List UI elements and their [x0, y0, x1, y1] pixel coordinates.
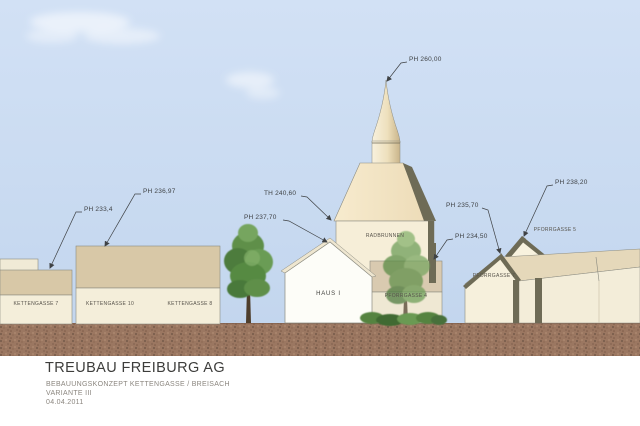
label-kettengasse-7: KETTENGASSE 7 [0, 302, 72, 307]
annotation-ph-pforrgasse7: PH 235,70 [446, 203, 479, 210]
title-date: 04.04.2011 [46, 399, 84, 406]
annotation-ph-kettengasse7: PH 233,4 [84, 207, 113, 214]
title-variant: VARIANTE III [46, 390, 92, 397]
elevation-drawing: PH 233,4 PH 236,97 TH 240,60 PH 237,70 P… [0, 0, 640, 426]
building-kettengasse-7 [0, 270, 72, 324]
title-project: BEBAUUNGSKONZEPT KETTENGASSE / BREISACH [46, 381, 230, 388]
label-pforrgasse-5: PFORRGASSE 5 [529, 228, 581, 233]
label-kettengasse-8: KETTENGASSE 8 [156, 302, 224, 307]
label-radbrunnen: RADBRUNNEN [336, 234, 434, 239]
pforrgasse-7-passage [513, 280, 519, 323]
label-kettengasse-10: KETTENGASSE 10 [76, 302, 144, 307]
label-haus-1: HAUS I [285, 291, 372, 297]
title-company: TREUBAU FREIBURG AG [45, 361, 225, 376]
right-long-passage [535, 278, 542, 323]
label-pforrgasse-4: PFORRGASSE 4 [370, 294, 442, 299]
pforrgasse-4-shadow-strip [429, 243, 436, 283]
annotation-ph-spire: PH 260,00 [409, 57, 442, 64]
annotation-th-radbrunnen: TH 240,60 [264, 191, 296, 198]
ground [0, 323, 640, 356]
building-right-long [502, 249, 640, 323]
building-kettengasse-10-8 [76, 246, 220, 324]
annotation-ph-haus1: PH 237,70 [244, 215, 277, 222]
annotation-ph-kettengasse: PH 236,97 [143, 189, 176, 196]
annotation-ph-pforrgasse5: PH 238,20 [555, 180, 588, 187]
label-pforrgasse-7: PFORRGASSE 7 [467, 274, 521, 279]
annotation-ph-pforrgasse4: PH 234,50 [455, 234, 488, 241]
